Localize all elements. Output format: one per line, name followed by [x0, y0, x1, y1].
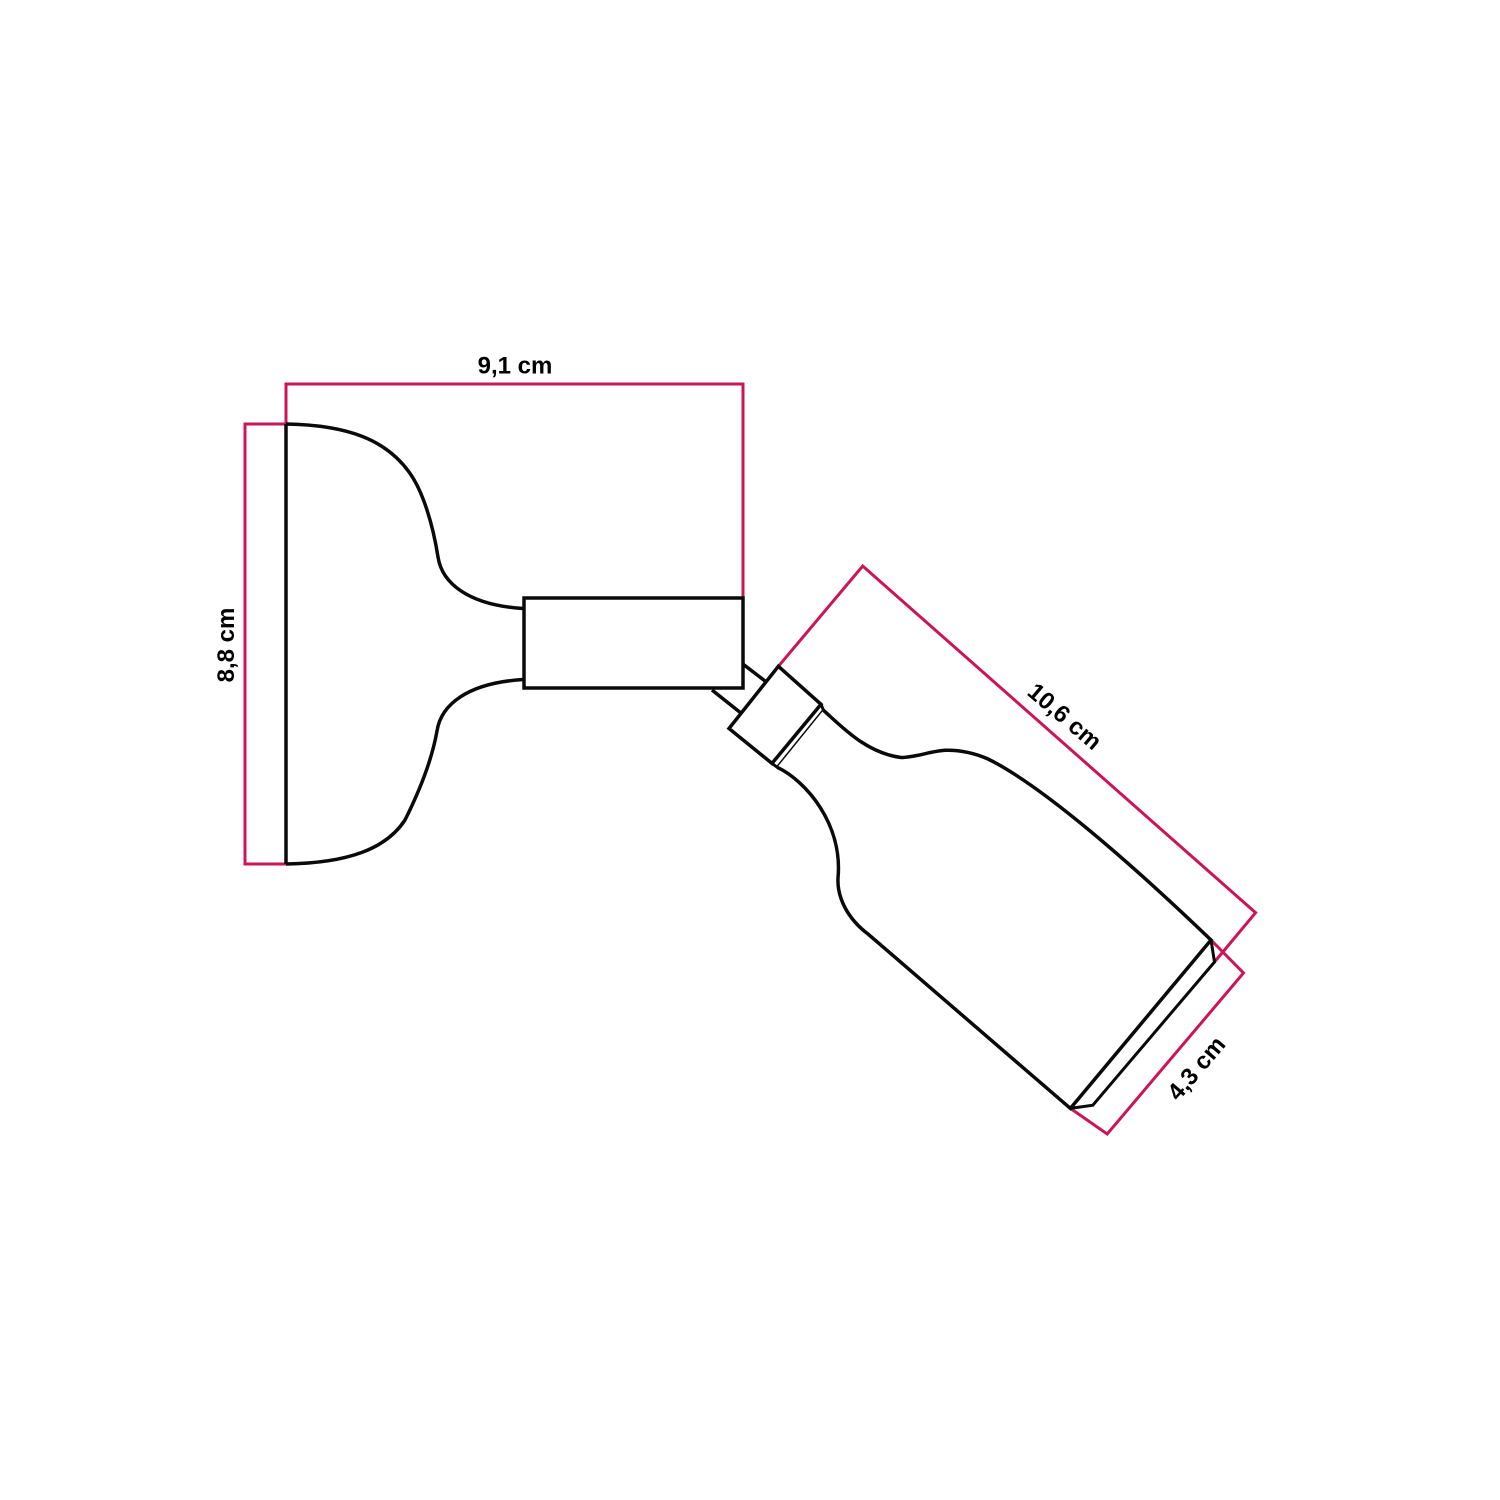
- svg-text:9,1 cm: 9,1 cm: [478, 353, 553, 380]
- svg-text:8,8 cm: 8,8 cm: [213, 608, 240, 683]
- svg-text:4,3 cm: 4,3 cm: [1162, 1031, 1231, 1105]
